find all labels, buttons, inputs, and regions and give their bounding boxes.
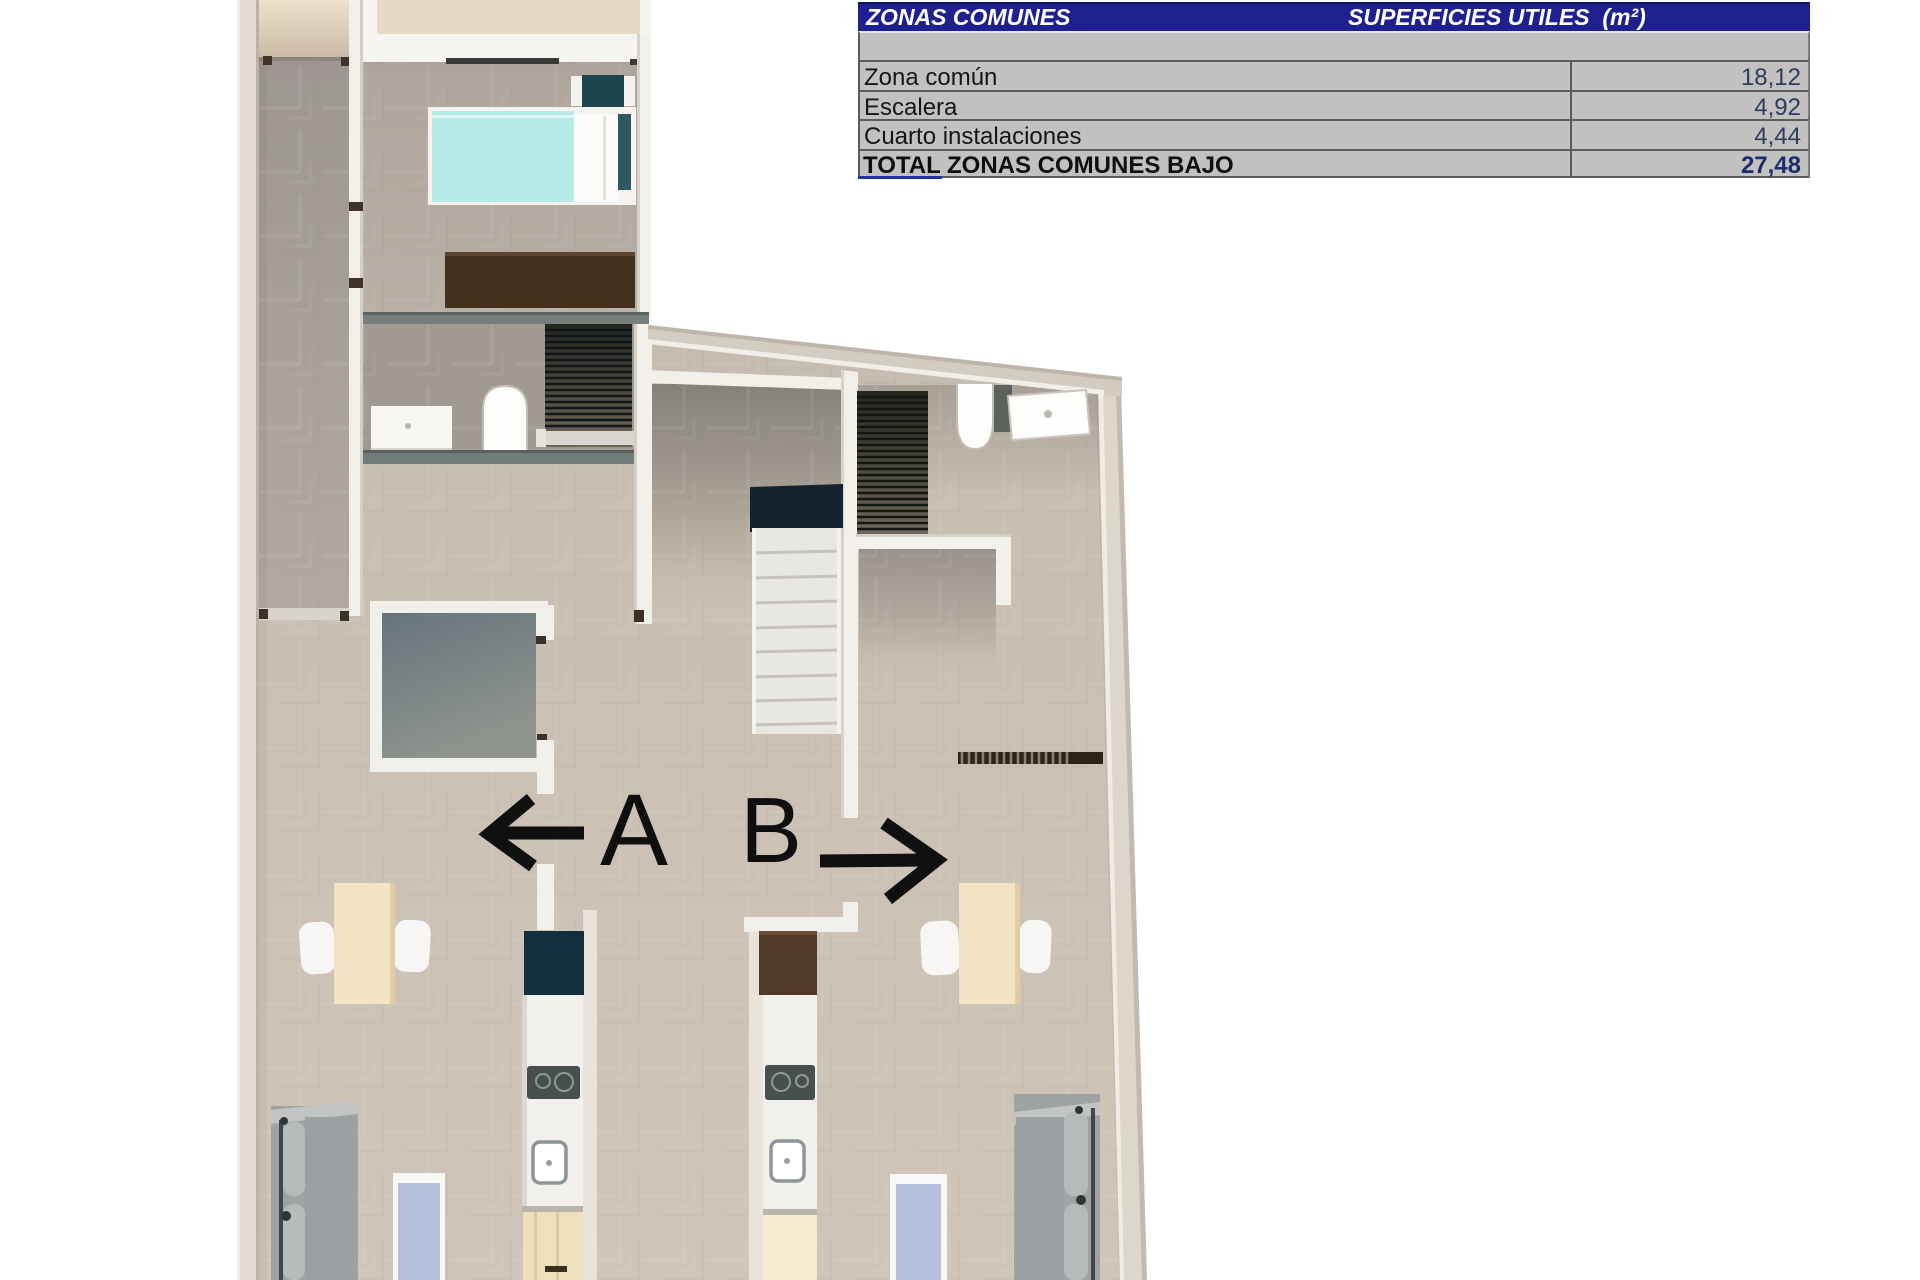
svg-text:A: A bbox=[600, 773, 668, 887]
svg-text:B: B bbox=[740, 778, 802, 882]
